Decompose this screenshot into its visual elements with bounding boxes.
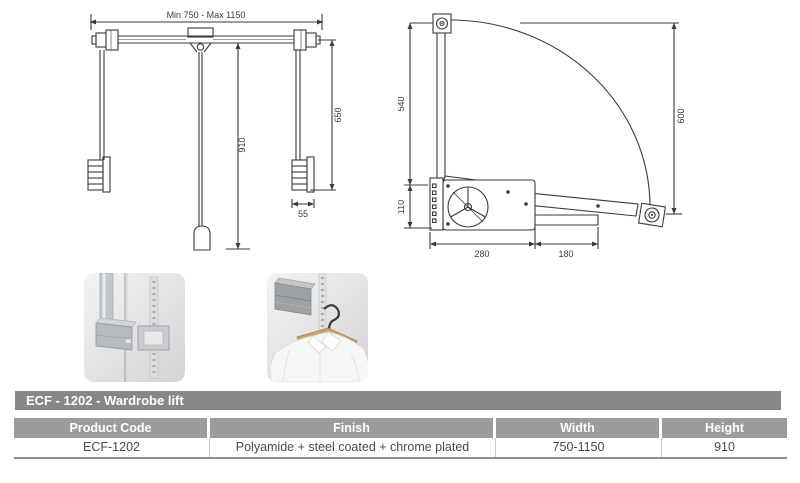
shirt-hanger-photo-art [267,273,368,382]
side-view-drawing: 540 110 600 280 180 [398,6,690,262]
mechanism-photo [84,273,185,382]
pull-cable [199,52,202,226]
spec-table: Product Code Finish Width Height ECF-120… [14,418,787,459]
right-rod [296,50,300,160]
arm-upper-label: 540 [398,96,406,111]
left-stop-block [88,157,110,192]
value-height: 910 [662,438,787,457]
lower-rail [535,215,598,225]
swing-arc [451,20,650,205]
col-height: Height [662,418,787,438]
catalog-page: Min 750 - Max 1150 910 650 55 [0,0,800,483]
rail-depth-label: 180 [558,249,573,259]
swing-height-label: 600 [676,108,686,123]
top-pivot [433,14,451,33]
arm-upper-dimension [404,23,433,185]
body-depth-label: 280 [474,249,489,259]
center-drop-label: 910 [237,137,247,152]
spec-table-header: Product Code Finish Width Height [14,418,787,438]
col-finish: Finish [210,418,496,438]
stop-width-label: 55 [298,209,308,219]
vertical-bar [437,33,445,178]
stop-width-dimension [292,199,314,208]
arm-end-pivot [639,203,666,227]
col-width: Width [496,418,662,438]
width-range-label: Min 750 - Max 1150 [167,10,246,20]
pull-handle [194,226,210,250]
mechanism-photo-art [84,273,185,382]
spec-table-row: ECF-1202 Polyamide + steel coated + chro… [14,438,787,459]
value-finish: Polyamide + steel coated + chrome plated [210,438,496,457]
swing-height-dimension [520,23,682,214]
product-title-bar: ECF - 1202 - Wardrobe lift [15,391,781,410]
right-end-cap [294,30,320,50]
left-rod [100,50,104,160]
shirt-hanger-photo [267,273,368,382]
arm-lower-label: 110 [398,200,406,214]
col-product-code: Product Code [14,418,210,438]
center-clamp [188,28,213,52]
left-end-cap [92,30,118,50]
mechanism-housing [430,178,535,230]
arm-lower-dimension [404,185,432,228]
side-drop-label: 650 [333,107,343,122]
right-stop-block [292,157,314,192]
value-width: 750-1150 [496,438,662,457]
front-view-drawing: Min 750 - Max 1150 910 650 55 [78,8,348,260]
value-product-code: ECF-1202 [14,438,210,457]
